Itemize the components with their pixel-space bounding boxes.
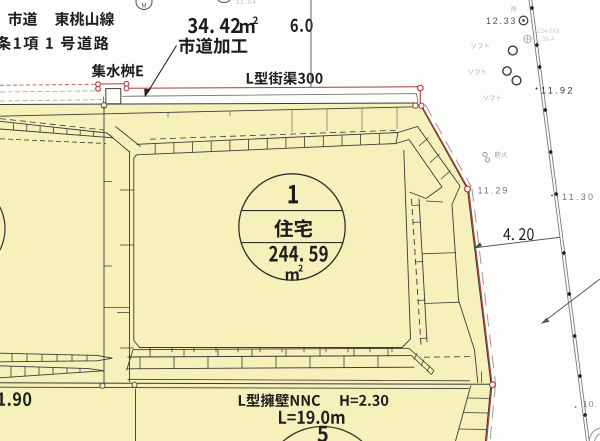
svg-text:Z24.0X8: Z24.0X8 [537, 29, 560, 35]
svg-text:35.4: 35.4 [543, 37, 555, 43]
svg-text:M: M [142, 4, 147, 10]
svg-text:11.04: 11.04 [236, 0, 257, 6]
svg-text:11.30: 11.30 [562, 192, 595, 202]
svg-text:11.92: 11.92 [541, 86, 575, 96]
svg-text:12.33: 12.33 [486, 16, 517, 26]
svg-text:11.29: 11.29 [478, 185, 510, 195]
svg-text:10.: 10. [583, 399, 598, 409]
